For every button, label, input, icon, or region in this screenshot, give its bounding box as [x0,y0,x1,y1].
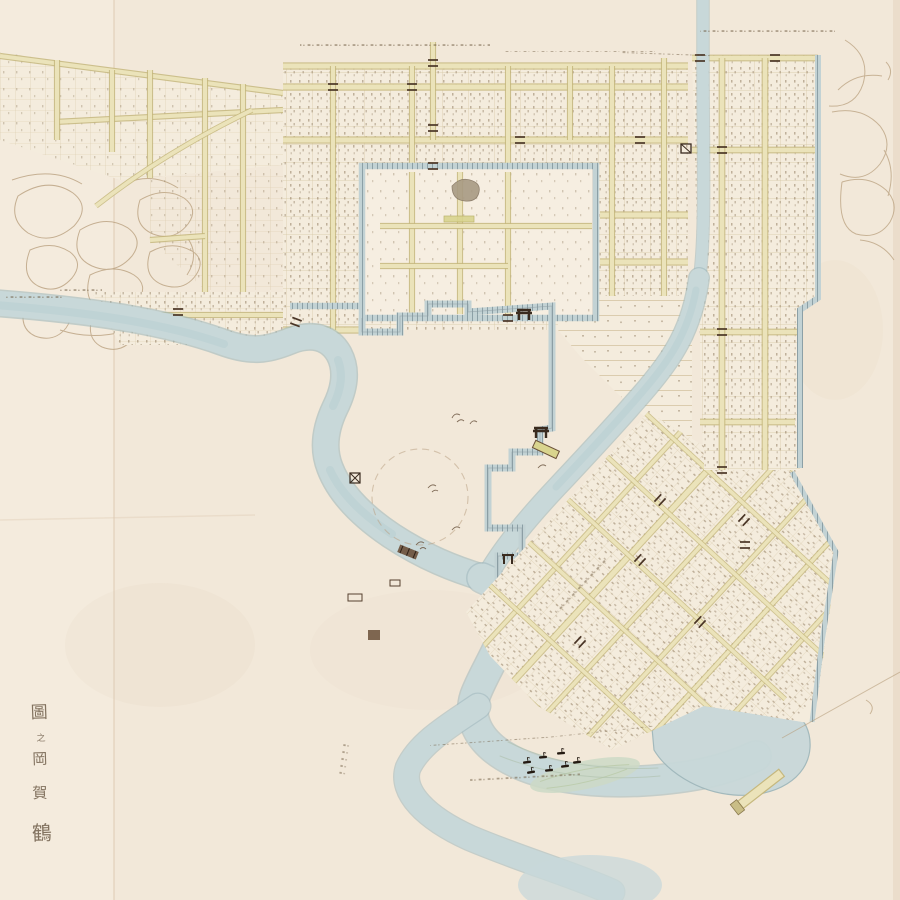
title-char-1: 圖 [30,703,48,724]
page-edge-shadow [893,0,900,900]
title-char-4: 賀 [32,784,48,803]
highlighted-building [444,216,474,222]
title-char-5: 鶴 [31,821,52,846]
map-canvas: 圖 之 岡 賀 鶴 [0,0,900,900]
historical-map: 圖 之 岡 賀 鶴 [0,0,900,900]
title-char-2: 之 [36,732,45,744]
paper-blotch [65,583,255,707]
title-char-3: 岡 [32,750,48,769]
inner-district [362,166,596,318]
north-canal [699,0,704,282]
garden-pond [452,179,479,201]
